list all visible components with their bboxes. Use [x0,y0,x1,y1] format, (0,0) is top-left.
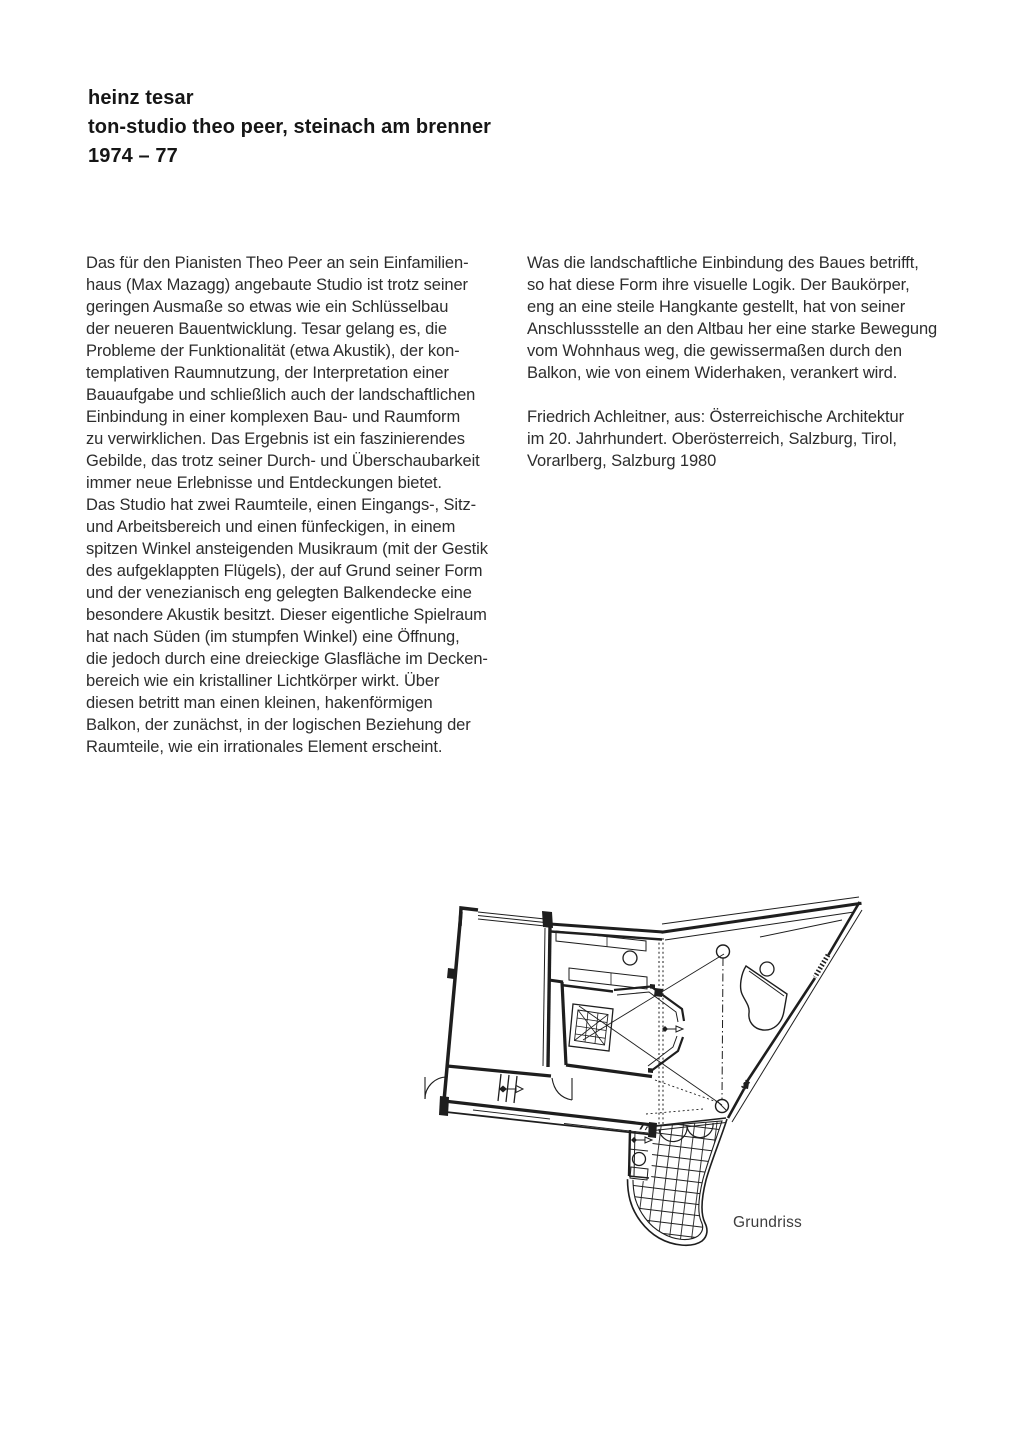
text-line: Das Studio hat zwei Raumteile, einen Ein… [86,494,522,516]
text-line: Einbindung in einer komplexen Bau- und R… [86,406,522,428]
paragraph-source-credit: Friedrich Achleitner, aus: Österreichisc… [527,406,967,472]
text-line: die jedoch durch eine dreieckige Glasflä… [86,648,522,670]
text-line: Bauaufgabe und schließlich auch der land… [86,384,522,406]
text-line: vom Wohnhaus weg, die gewissermaßen durc… [527,340,967,362]
text-line: Das für den Pianisten Theo Peer an sein … [86,252,522,274]
entrance-arrow [499,1086,523,1093]
text-line: Balkon, wie von einem Widerhaken, verank… [527,362,967,384]
axis-dash-dot [722,958,723,1099]
piano-stool [760,962,774,976]
document-page: heinz tesar ton-studio theo peer, steina… [0,0,1024,1436]
project-years: 1974 – 77 [88,142,491,171]
text-line: und Arbeitsbereich und einen fünfeckigen… [86,516,522,538]
text-line: haus (Max Mazagg) angebaute Studio ist t… [86,274,522,296]
grand-piano [741,962,787,1030]
paragraph-gap [527,384,967,406]
text-line: hat nach Süden (im stumpfen Winkel) eine… [86,626,522,648]
text-line: der neueren Bauentwicklung. Tesar gelang… [86,318,522,340]
window-glazing [478,912,545,926]
floor-plan-figure: Grundriss [415,870,885,1260]
text-line: Was die landschaftliche Einbindung des B… [527,252,967,274]
pentagon-bay [614,984,684,1073]
bottom-wall [444,1101,653,1125]
shelf-bands [556,931,647,989]
text-line: Vorarlberg, Salzburg 1980 [527,450,967,472]
square-grid-element [569,1004,613,1051]
construction-lines [579,938,724,1125]
window-hatch [815,955,828,977]
text-line: templativen Raumnutzung, der Interpretat… [86,362,522,384]
text-line: eng an eine steile Hangkante gestellt, h… [527,296,967,318]
text-line: Anschlussstelle an den Altbau her eine s… [527,318,967,340]
figure-caption: Grundriss [733,1214,802,1232]
entrance-arrow [662,1026,683,1032]
text-line: diesen betritt man einen kleinen, hakenf… [86,692,522,714]
body-column-right: Was die landschaftliche Einbindung des B… [527,252,967,472]
text-line: Gebilde, das trotz seiner Durch- und Übe… [86,450,522,472]
text-line: spitzen Winkel ansteigenden Musikraum (m… [86,538,522,560]
text-line: bereich wie ein kristalliner Lichtkörper… [86,670,522,692]
floor-plan-drawing [415,870,885,1260]
text-line: besondere Akustik besitzt. Dieser eigent… [86,604,522,626]
balcony [626,1119,727,1245]
text-line: Balkon, der zunächst, in der logischen B… [86,714,522,736]
article-header: heinz tesar ton-studio theo peer, steina… [88,84,491,171]
text-line: im 20. Jahrhundert. Oberösterreich, Salz… [527,428,967,450]
text-line: geringen Ausmaße so etwas wie ein Schlüs… [86,296,522,318]
text-line: Probleme der Funktionalität (etwa Akusti… [86,340,522,362]
text-line: und der venezianisch eng gelegten Balken… [86,582,522,604]
project-title: ton-studio theo peer, steinach am brenne… [88,113,491,142]
text-line: Friedrich Achleitner, aus: Österreichisc… [527,406,967,428]
text-line: so hat diese Form ihre visuelle Logik. D… [527,274,967,296]
text-line: des aufgeklappten Flügels), der auf Grun… [86,560,522,582]
architect-name: heinz tesar [88,84,491,113]
text-line: immer neue Erlebnisse und Entdeckungen b… [86,472,522,494]
text-line: zu verwirklichen. Das Ergebnis ist ein f… [86,428,522,450]
body-column-left: Das für den Pianisten Theo Peer an sein … [86,252,522,758]
text-line: Raumteile, wie ein irrationales Element … [86,736,522,758]
paragraph-landscape: Was die landschaftliche Einbindung des B… [527,252,967,384]
studio-fixture-circle [623,951,637,965]
